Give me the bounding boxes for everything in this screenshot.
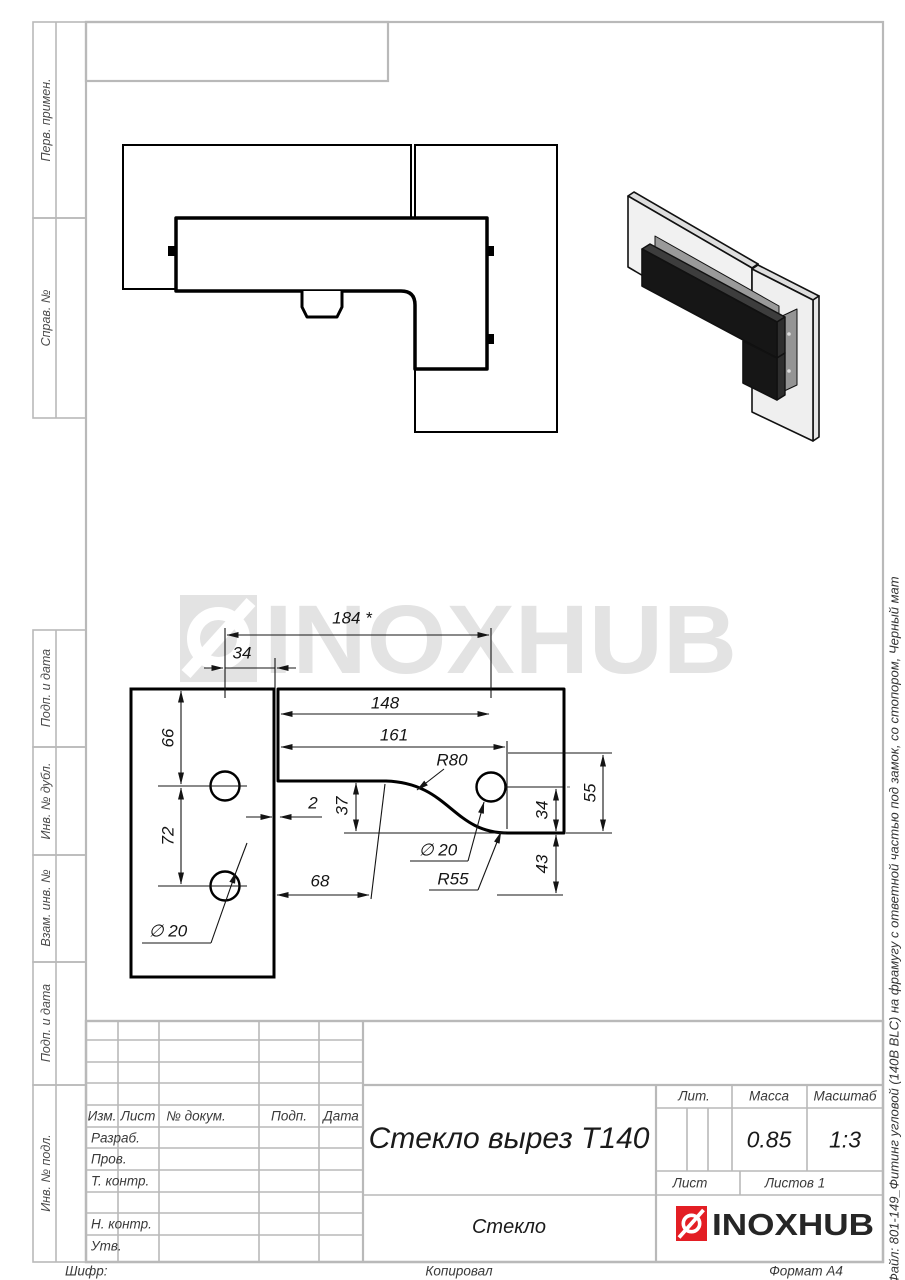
th-list: Лист — [121, 1109, 156, 1123]
file-note: Файл: 801-149_Фитинг угловой (140В BLC) … — [888, 576, 901, 1280]
dim-55: 55 — [582, 784, 599, 803]
dim-34-top: 34 — [233, 645, 252, 662]
th-podp: Подп. — [271, 1109, 307, 1123]
row-n-kontr: Н. контр. — [91, 1217, 152, 1231]
fitting-lock-notch — [302, 291, 342, 317]
label-perv-primen: Перв. примен. — [40, 78, 53, 161]
row-razrab: Разраб. — [91, 1131, 140, 1145]
dim-dia20-right: ∅ 20 — [419, 842, 457, 859]
fitting-pin-left — [168, 246, 176, 256]
mass-value: 0.85 — [747, 1129, 792, 1152]
label-sprav-no: Справ. № — [40, 290, 53, 347]
footer-format: Формат А4 — [769, 1264, 843, 1278]
scale-label: Масштаб — [813, 1089, 876, 1103]
th-data: Дата — [323, 1109, 359, 1123]
dim-148: 148 — [371, 695, 399, 712]
dim-43: 43 — [534, 855, 551, 874]
dim-2: 2 — [308, 795, 317, 812]
part-flange — [278, 689, 564, 833]
left-margin-boxes — [33, 22, 86, 1262]
dim-66: 66 — [160, 729, 177, 748]
dim-72: 72 — [160, 827, 177, 846]
fitting-pin-right-top — [487, 246, 494, 256]
hole-right — [477, 773, 506, 802]
sheets-label: Листов 1 — [765, 1176, 825, 1190]
label-vzam-inv: Взам. инв. № — [40, 869, 53, 946]
drawing-sheet: INOXHUB — [0, 0, 905, 1280]
label-podp-data-2: Подп. и дата — [40, 984, 53, 1062]
th-doc-no: № докум. — [166, 1109, 225, 1123]
mass-label: Масса — [749, 1089, 789, 1103]
row-t-kontr: Т. контр. — [91, 1174, 149, 1188]
dim-68: 68 — [311, 873, 330, 890]
fitting-pin-right-bottom — [487, 334, 494, 344]
label-inv-podl: Инв. № подл. — [40, 1134, 53, 1212]
lit-label: Лит. — [678, 1089, 710, 1103]
dim-dia20-left: ∅ 20 — [149, 923, 187, 940]
view-isometric — [628, 192, 819, 441]
row-utv: Утв. — [91, 1239, 122, 1253]
dim-37: 37 — [334, 797, 351, 816]
row-prov: Пров. — [91, 1152, 127, 1166]
inoxhub-logo: INOXHUB — [676, 1206, 874, 1242]
footer-code: Шифр: — [65, 1264, 107, 1278]
scale-value: 1:3 — [829, 1129, 861, 1152]
dim-184: 184 * — [332, 610, 372, 627]
footer-copied: Копировал — [425, 1264, 492, 1278]
view-top — [123, 145, 557, 432]
dim-r80: R80 — [436, 752, 467, 769]
material-name: Стекло — [472, 1217, 546, 1237]
th-izm: Изм. — [88, 1109, 117, 1123]
dim-161: 161 — [380, 727, 408, 744]
dim-r55: R55 — [437, 871, 468, 888]
label-podp-data-1: Подп. и дата — [40, 649, 53, 727]
drawing-title: Стекло вырез Т140 — [369, 1124, 650, 1154]
sheet-label: Лист — [673, 1176, 708, 1190]
dim-34-right: 34 — [534, 801, 551, 820]
logo-text: INOXHUB — [712, 1207, 874, 1242]
label-inv-dubl: Инв. № дубл. — [40, 763, 53, 840]
